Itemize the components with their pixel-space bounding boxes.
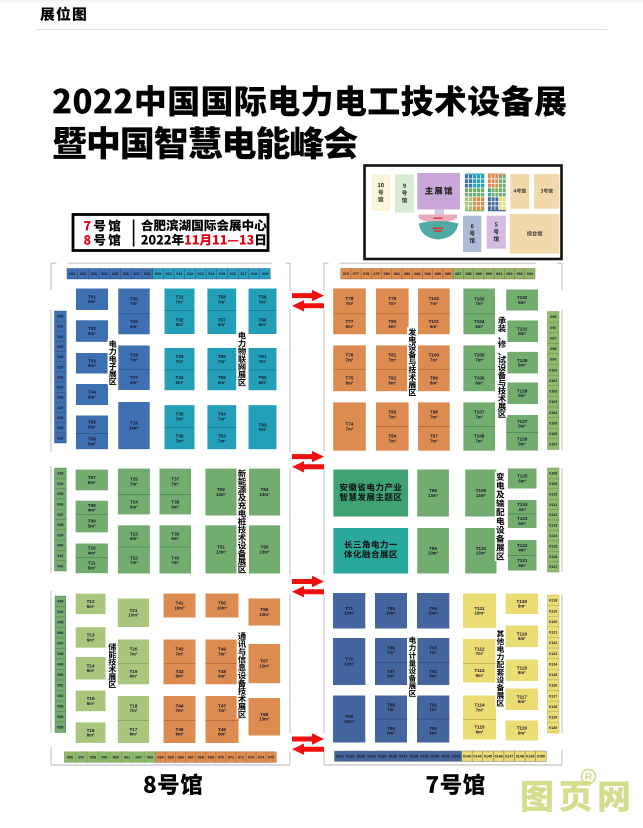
svg-text:R: R: [585, 771, 593, 783]
svg-text:6m²: 6m²: [171, 504, 179, 509]
svg-text:0130: 0130: [549, 726, 557, 730]
svg-text:075: 075: [268, 756, 274, 760]
svg-text:0142: 0142: [452, 755, 460, 759]
svg-text:0139: 0139: [420, 755, 428, 759]
svg-text:7m²: 7m²: [259, 359, 267, 364]
svg-text:0109: 0109: [549, 482, 557, 486]
svg-text:6m²: 6m²: [88, 299, 96, 304]
svg-text:0146: 0146: [495, 755, 503, 759]
svg-text:0119: 0119: [549, 609, 557, 613]
svg-text:4m²: 4m²: [518, 507, 526, 512]
svg-text:6m²: 6m²: [130, 674, 138, 679]
svg-text:7m²: 7m²: [218, 416, 226, 421]
svg-text:0145: 0145: [484, 755, 492, 759]
svg-text:008: 008: [144, 272, 150, 276]
svg-text:080: 080: [384, 272, 390, 276]
svg-text:047: 047: [57, 642, 63, 646]
svg-text:002: 002: [80, 272, 86, 276]
svg-text:6m²: 6m²: [259, 322, 267, 327]
svg-text:063: 063: [147, 756, 153, 760]
svg-text:089: 089: [476, 272, 482, 276]
svg-text:7m²: 7m²: [171, 560, 179, 565]
svg-text:4m²: 4m²: [88, 508, 96, 513]
svg-text:6m²: 6m²: [518, 604, 526, 609]
svg-text:6m²: 6m²: [88, 363, 96, 368]
svg-text:6m²: 6m²: [87, 604, 95, 609]
svg-text:085: 085: [435, 272, 441, 276]
svg-text:006: 006: [123, 272, 129, 276]
svg-text:6m²: 6m²: [430, 324, 438, 329]
svg-text:6m²: 6m²: [518, 363, 526, 368]
svg-text:6m²: 6m²: [87, 701, 95, 706]
svg-text:040: 040: [57, 544, 63, 548]
svg-text:7m²: 7m²: [388, 357, 396, 362]
svg-text:6m²: 6m²: [475, 324, 483, 329]
svg-text:036: 036: [57, 502, 63, 506]
svg-text:066: 066: [178, 756, 184, 760]
svg-text:099: 099: [550, 358, 556, 362]
svg-text:7m²: 7m²: [346, 357, 354, 362]
svg-text:13m²: 13m²: [259, 549, 270, 554]
svg-text:088: 088: [465, 272, 471, 276]
svg-text:092: 092: [506, 272, 512, 276]
svg-text:0131: 0131: [336, 755, 344, 759]
svg-text:7m²: 7m²: [171, 481, 179, 486]
svg-text:0120: 0120: [549, 620, 557, 624]
svg-text:0114: 0114: [549, 534, 558, 538]
svg-text:062: 062: [135, 756, 141, 760]
svg-text:074: 074: [258, 756, 265, 760]
svg-text:071: 071: [228, 756, 234, 760]
svg-text:13m²: 13m²: [428, 551, 439, 556]
svg-text:067: 067: [188, 756, 194, 760]
svg-text:0115: 0115: [549, 544, 557, 548]
svg-text:0149: 0149: [526, 755, 534, 759]
svg-text:6m²: 6m²: [130, 732, 138, 737]
svg-text:5m²: 5m²: [518, 424, 526, 429]
svg-text:087: 087: [455, 272, 461, 276]
svg-text:7m²: 7m²: [430, 439, 438, 444]
svg-text:0148: 0148: [516, 755, 524, 759]
svg-text:6m²: 6m²: [518, 670, 526, 675]
svg-text:073: 073: [248, 756, 254, 760]
svg-text:6m²: 6m²: [176, 732, 184, 737]
svg-text:0125: 0125: [549, 673, 557, 677]
svg-text:10m²: 10m²: [428, 611, 439, 616]
svg-text:4m²: 4m²: [518, 548, 526, 553]
svg-text:5m²: 5m²: [88, 523, 96, 528]
svg-text:7m²: 7m²: [346, 301, 354, 306]
svg-text:046: 046: [57, 631, 63, 635]
svg-text:10m²: 10m²: [128, 613, 139, 618]
svg-text:5m²: 5m²: [518, 441, 526, 446]
svg-text:10m²: 10m²: [474, 611, 485, 616]
svg-text:098: 098: [550, 347, 556, 351]
svg-text:0108: 0108: [549, 472, 557, 476]
svg-text:7m²: 7m²: [475, 439, 483, 444]
svg-text:10m²: 10m²: [386, 611, 397, 616]
svg-text:077: 077: [353, 272, 359, 276]
svg-text:0123: 0123: [549, 652, 557, 656]
svg-text:6m²: 6m²: [218, 674, 226, 679]
svg-text:7m²: 7m²: [430, 414, 438, 419]
svg-text:6m²: 6m²: [518, 331, 526, 336]
svg-text:059: 059: [101, 756, 107, 760]
svg-text:037: 037: [57, 513, 63, 517]
svg-text:0107: 0107: [549, 443, 557, 447]
svg-text:7m²: 7m²: [430, 357, 438, 362]
svg-text:0117: 0117: [549, 565, 557, 569]
svg-text:023: 023: [57, 345, 63, 349]
svg-text:7m²: 7m²: [130, 481, 138, 486]
svg-text:025: 025: [57, 365, 63, 369]
svg-text:0134: 0134: [367, 755, 376, 759]
svg-text:058: 058: [90, 756, 96, 760]
svg-text:7m²: 7m²: [475, 357, 483, 362]
svg-text:022: 022: [57, 335, 63, 339]
svg-text:003: 003: [91, 272, 97, 276]
svg-text:6m²: 6m²: [130, 504, 138, 509]
svg-text:001: 001: [69, 272, 75, 276]
svg-text:0143: 0143: [463, 755, 471, 759]
svg-text:0126: 0126: [549, 684, 557, 688]
svg-text:093: 093: [517, 272, 523, 276]
svg-text:064: 064: [158, 756, 165, 760]
svg-text:033: 033: [57, 472, 63, 476]
svg-text:030: 030: [57, 416, 63, 420]
svg-text:0122: 0122: [549, 641, 557, 645]
svg-text:7m²: 7m²: [476, 651, 484, 656]
svg-text:6m²: 6m²: [88, 480, 96, 485]
svg-text:044: 044: [57, 610, 64, 614]
svg-text:055: 055: [57, 726, 63, 730]
svg-text:038: 038: [57, 523, 63, 527]
svg-text:7m²: 7m²: [429, 707, 437, 712]
svg-text:0137: 0137: [399, 755, 407, 759]
svg-text:10m²: 10m²: [259, 612, 270, 617]
svg-text:034: 034: [57, 482, 64, 486]
svg-text:010: 010: [166, 272, 172, 276]
svg-text:009: 009: [155, 272, 161, 276]
svg-text:6m²: 6m²: [176, 322, 184, 327]
svg-text:094: 094: [527, 272, 534, 276]
svg-text:0132: 0132: [346, 755, 354, 759]
svg-text:041: 041: [57, 554, 63, 558]
svg-text:0102: 0102: [549, 390, 557, 394]
svg-text:7m²: 7m²: [218, 359, 226, 364]
svg-text:7m²: 7m²: [387, 707, 395, 712]
svg-text:6m²: 6m²: [218, 732, 226, 737]
svg-text:045: 045: [57, 621, 63, 625]
svg-text:6m²: 6m²: [130, 536, 138, 541]
svg-text:7m²: 7m²: [430, 301, 438, 306]
svg-text:050: 050: [57, 673, 63, 677]
svg-text:035: 035: [57, 492, 63, 496]
svg-text:6m²: 6m²: [218, 380, 226, 385]
svg-text:6m²: 6m²: [387, 674, 395, 679]
svg-text:13m²: 13m²: [259, 717, 270, 722]
svg-text:053: 053: [57, 705, 63, 709]
svg-text:0127: 0127: [549, 694, 557, 698]
svg-text:6m²: 6m²: [346, 380, 354, 385]
svg-text:027: 027: [57, 386, 63, 390]
svg-text:13m²: 13m²: [476, 493, 487, 498]
svg-text:0112: 0112: [549, 513, 557, 517]
svg-text:7m²: 7m²: [130, 651, 138, 656]
svg-text:6m²: 6m²: [176, 674, 184, 679]
svg-text:0106: 0106: [549, 432, 557, 436]
svg-text:7m²: 7m²: [218, 438, 226, 443]
svg-text:7m²: 7m²: [476, 707, 484, 712]
svg-text:060: 060: [113, 756, 119, 760]
svg-text:7m²: 7m²: [475, 301, 483, 306]
svg-text:095: 095: [550, 315, 556, 319]
svg-text:6m²: 6m²: [176, 380, 184, 385]
svg-text:5m²: 5m²: [518, 521, 526, 526]
svg-text:6m²: 6m²: [476, 673, 484, 678]
svg-text:070: 070: [218, 756, 224, 760]
svg-text:082: 082: [404, 272, 410, 276]
svg-text:056: 056: [67, 756, 73, 760]
svg-text:6m²: 6m²: [259, 380, 267, 385]
svg-text:065: 065: [168, 756, 174, 760]
svg-text:078: 078: [363, 272, 369, 276]
svg-text:0150: 0150: [537, 755, 545, 759]
svg-text:031: 031: [57, 426, 63, 430]
svg-text:6m²: 6m²: [87, 668, 95, 673]
svg-text:6m²: 6m²: [518, 300, 526, 305]
svg-text:6m²: 6m²: [475, 380, 483, 385]
svg-text:5m²: 5m²: [88, 565, 96, 570]
svg-text:0113: 0113: [549, 524, 557, 528]
svg-text:6m²: 6m²: [518, 699, 526, 704]
svg-text:6m²: 6m²: [130, 380, 138, 385]
svg-text:043: 043: [57, 600, 63, 604]
svg-text:7m²: 7m²: [388, 439, 396, 444]
svg-text:0138: 0138: [410, 755, 418, 759]
svg-text:6m²: 6m²: [518, 393, 526, 398]
svg-text:4m²: 4m²: [88, 550, 96, 555]
svg-text:6m²: 6m²: [430, 380, 438, 385]
svg-text:6m²: 6m²: [218, 322, 226, 327]
svg-text:0129: 0129: [549, 715, 557, 719]
svg-text:0111: 0111: [549, 503, 557, 507]
svg-text:005: 005: [112, 272, 118, 276]
svg-text:6m²: 6m²: [130, 324, 138, 329]
svg-text:10m²: 10m²: [344, 611, 355, 616]
svg-text:6m²: 6m²: [171, 536, 179, 541]
svg-text:0103: 0103: [549, 400, 557, 404]
svg-text:029: 029: [57, 406, 63, 410]
svg-text:6m²: 6m²: [346, 324, 354, 329]
svg-text:0140: 0140: [431, 755, 439, 759]
svg-text:13m²: 13m²: [259, 664, 270, 669]
svg-text:021: 021: [57, 325, 63, 329]
svg-text:7m²: 7m²: [130, 301, 138, 306]
svg-text:013: 013: [198, 272, 204, 276]
svg-text:14m²: 14m²: [129, 426, 140, 431]
svg-text:6m²: 6m²: [87, 733, 95, 738]
svg-text:6m²: 6m²: [388, 380, 396, 385]
svg-text:7m²: 7m²: [176, 651, 184, 656]
svg-text:083: 083: [414, 272, 420, 276]
svg-text:7m²: 7m²: [346, 426, 354, 431]
svg-text:6m²: 6m²: [476, 729, 484, 734]
svg-text:052: 052: [57, 694, 63, 698]
svg-text:004: 004: [101, 272, 108, 276]
svg-text:039: 039: [57, 533, 63, 537]
svg-text:020: 020: [57, 314, 63, 318]
svg-text:090: 090: [486, 272, 492, 276]
svg-text:7m²: 7m²: [475, 414, 483, 419]
svg-text:081: 081: [394, 272, 400, 276]
svg-text:048: 048: [57, 652, 63, 656]
svg-text:076: 076: [343, 272, 349, 276]
svg-text:7m²: 7m²: [176, 438, 184, 443]
svg-text:10m²: 10m²: [174, 605, 185, 610]
svg-text:7m²: 7m²: [388, 301, 396, 306]
svg-text:0141: 0141: [442, 755, 450, 759]
svg-text:6m²: 6m²: [88, 394, 96, 399]
svg-text:0135: 0135: [378, 755, 386, 759]
svg-text:012: 012: [187, 272, 193, 276]
svg-text:13m²: 13m²: [344, 661, 355, 666]
svg-text:057: 057: [78, 756, 84, 760]
svg-text:13m²: 13m²: [476, 551, 487, 556]
svg-text:7m²: 7m²: [387, 650, 395, 655]
svg-text:0124: 0124: [549, 662, 558, 666]
svg-text:7m²: 7m²: [388, 414, 396, 419]
svg-text:096: 096: [550, 326, 556, 330]
svg-text:015: 015: [219, 272, 225, 276]
svg-text:13m²: 13m²: [344, 719, 355, 724]
svg-text:024: 024: [57, 355, 64, 359]
svg-text:0133: 0133: [357, 755, 365, 759]
svg-text:6m²: 6m²: [429, 674, 437, 679]
svg-text:10m²: 10m²: [217, 605, 228, 610]
svg-text:097: 097: [550, 336, 556, 340]
svg-text:7m²: 7m²: [429, 650, 437, 655]
svg-text:061: 061: [124, 756, 130, 760]
svg-text:13m²: 13m²: [428, 493, 439, 498]
svg-text:049: 049: [57, 663, 63, 667]
svg-text:007: 007: [133, 272, 139, 276]
svg-text:0101: 0101: [549, 379, 557, 383]
svg-text:054: 054: [57, 715, 64, 719]
svg-text:13m²: 13m²: [216, 549, 227, 554]
svg-text:051: 051: [57, 684, 63, 688]
svg-text:7m²: 7m²: [176, 359, 184, 364]
svg-text:7m²: 7m²: [130, 358, 138, 363]
svg-text:6m²: 6m²: [429, 731, 437, 736]
svg-text:026: 026: [57, 375, 63, 379]
svg-text:017: 017: [240, 272, 246, 276]
svg-text:0118: 0118: [549, 599, 557, 603]
svg-text:019: 019: [262, 272, 268, 276]
svg-text:5m²: 5m²: [518, 563, 526, 568]
svg-text:016: 016: [230, 272, 236, 276]
svg-text:0105: 0105: [549, 421, 557, 425]
svg-text:0116: 0116: [549, 555, 557, 559]
svg-text:079: 079: [373, 272, 379, 276]
svg-text:028: 028: [57, 396, 63, 400]
svg-text:6m²: 6m²: [87, 637, 95, 642]
svg-text:7m²: 7m²: [176, 299, 184, 304]
svg-text:6m²: 6m²: [518, 730, 526, 735]
svg-text:7m²: 7m²: [218, 708, 226, 713]
svg-text:7m²: 7m²: [176, 708, 184, 713]
svg-text:0110: 0110: [549, 492, 557, 496]
svg-text:011: 011: [176, 272, 182, 276]
svg-text:6m²: 6m²: [88, 331, 96, 336]
svg-text:0128: 0128: [549, 705, 557, 709]
svg-text:091: 091: [496, 272, 502, 276]
svg-text:7m²: 7m²: [130, 560, 138, 565]
svg-text:13m²: 13m²: [259, 492, 270, 497]
svg-text:7m²: 7m²: [176, 416, 184, 421]
svg-text:0144: 0144: [473, 755, 482, 759]
svg-text:5m²: 5m²: [88, 441, 96, 446]
svg-text:0121: 0121: [549, 631, 557, 635]
svg-text:014: 014: [208, 272, 215, 276]
svg-text:0147: 0147: [505, 755, 513, 759]
svg-text:6m²: 6m²: [518, 636, 526, 641]
svg-text:018: 018: [251, 272, 257, 276]
svg-text:6m²: 6m²: [518, 478, 526, 483]
svg-text:084: 084: [425, 272, 432, 276]
svg-text:7m²: 7m²: [259, 427, 267, 432]
svg-text:086: 086: [445, 272, 451, 276]
svg-text:0136: 0136: [389, 755, 397, 759]
svg-text:7m²: 7m²: [259, 299, 267, 304]
svg-text:7m²: 7m²: [218, 299, 226, 304]
svg-text:069: 069: [208, 756, 214, 760]
svg-text:072: 072: [238, 756, 244, 760]
svg-text:6m²: 6m²: [387, 731, 395, 736]
svg-text:6m²: 6m²: [388, 324, 396, 329]
svg-text:7m²: 7m²: [130, 708, 138, 713]
svg-text:042: 042: [57, 564, 63, 568]
svg-text:032: 032: [57, 436, 63, 440]
svg-text:7m²: 7m²: [218, 651, 226, 656]
svg-text:068: 068: [198, 756, 204, 760]
svg-text:13m²: 13m²: [216, 492, 227, 497]
svg-text:0100: 0100: [549, 368, 557, 372]
svg-text:0104: 0104: [549, 411, 558, 415]
svg-text:5m²: 5m²: [88, 424, 96, 429]
